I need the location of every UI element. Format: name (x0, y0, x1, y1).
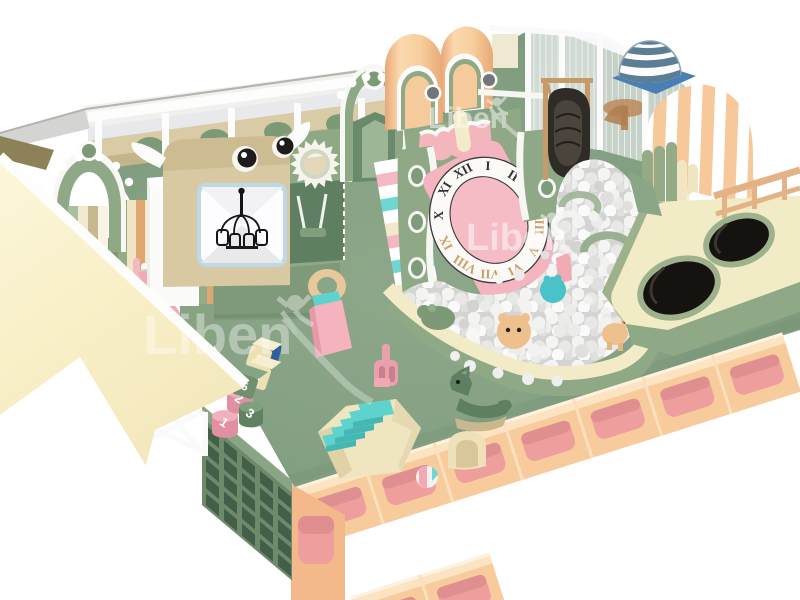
svg-text:I: I (485, 158, 491, 173)
svg-text:X: X (431, 210, 446, 221)
svg-text:Liben: Liben (143, 303, 292, 366)
